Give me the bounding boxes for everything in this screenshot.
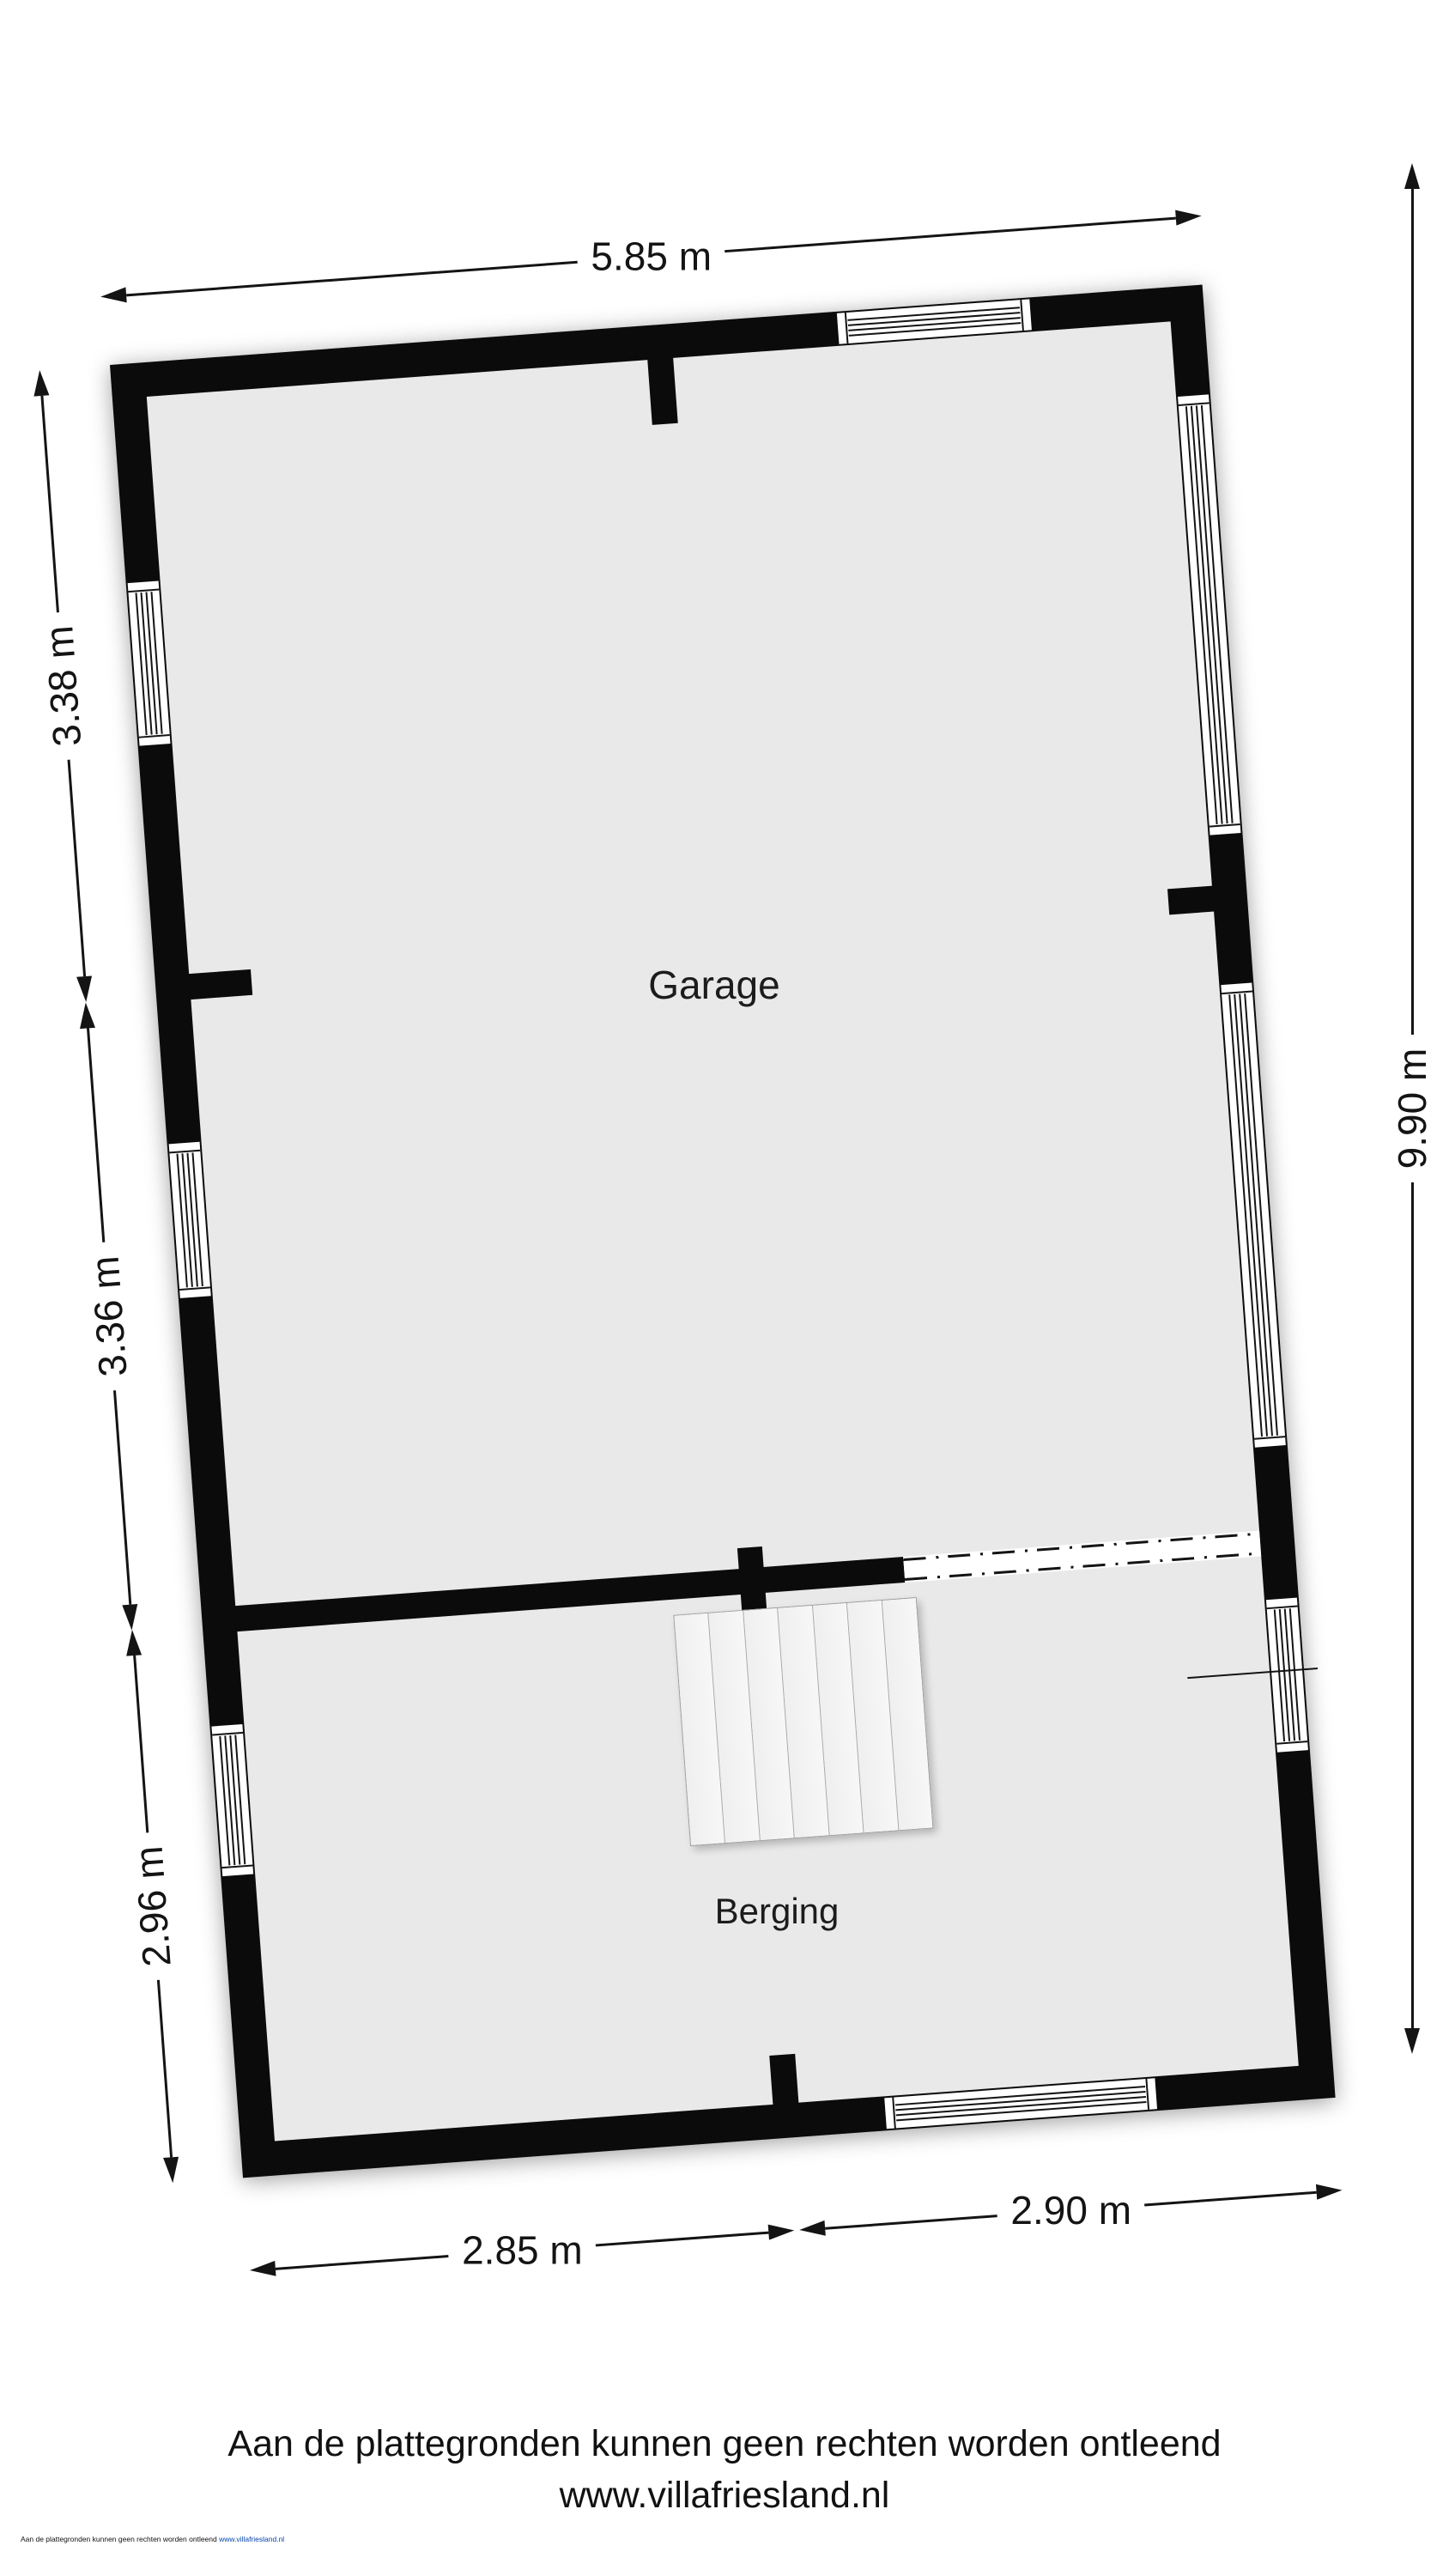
arrowhead-left-icon — [100, 287, 126, 304]
room-label-berging: Berging — [648, 1891, 906, 1932]
arrowhead-down-icon — [122, 1604, 139, 1631]
dimension-bottom-left: 2.85 m — [248, 2205, 797, 2296]
floor-area — [147, 321, 1299, 2141]
arrowhead-down-icon — [1404, 2028, 1420, 2054]
dimension-left-upper-label: 3.38 m — [34, 611, 91, 762]
dimension-top-label: 5.85 m — [577, 233, 725, 279]
dimension-left-lower-label: 2.96 m — [124, 1831, 180, 1982]
dimension-left-middle-label: 3.36 m — [80, 1241, 136, 1392]
dimension-bottom-left-label: 2.85 m — [448, 2227, 597, 2274]
arrowhead-down-icon — [163, 2157, 180, 2184]
dimension-right-label: 9.90 m — [1389, 1035, 1435, 1183]
arrowhead-right-icon — [768, 2222, 795, 2239]
wall-stub-bottom — [769, 2054, 798, 2106]
arrowhead-left-icon — [249, 2261, 276, 2278]
arrowhead-down-icon — [76, 975, 94, 1002]
dimension-right: 9.90 m — [1386, 163, 1438, 2054]
footer-website: www.villafriesland.nl — [0, 2475, 1449, 2517]
wall-stub-right — [1167, 885, 1216, 914]
stairs — [673, 1597, 933, 1846]
wall-stub-left — [187, 969, 252, 999]
arrowhead-up-icon — [1404, 163, 1420, 189]
arrowhead-left-icon — [799, 2221, 826, 2238]
dimension-bottom-right: 2.90 m — [797, 2165, 1344, 2256]
footer-disclaimer: Aan de plattegronden kunnen geen rechten… — [0, 2423, 1449, 2465]
arrowhead-up-icon — [78, 1002, 95, 1029]
fineprint-text: Aan de plattegronden kunnen geen rechten… — [21, 2535, 284, 2543]
arrowhead-up-icon — [32, 369, 49, 396]
arrowhead-right-icon — [1175, 208, 1202, 225]
room-label-garage: Garage — [585, 962, 843, 1008]
dimension-left-middle: 3.36 m — [60, 1000, 158, 1631]
arrowhead-right-icon — [1316, 2183, 1343, 2200]
dimension-left-lower: 2.96 m — [106, 1628, 198, 2185]
dimension-bottom-right-label: 2.90 m — [997, 2187, 1145, 2233]
arrowhead-up-icon — [124, 1629, 142, 1656]
floorplan-page: { "page": { "background": "#ffffff" }, "… — [0, 0, 1449, 2576]
fineprint-link: www.villafriesland.nl — [219, 2535, 284, 2543]
dimension-left-upper: 3.38 m — [14, 368, 112, 1004]
wall-stub-top — [647, 356, 678, 425]
